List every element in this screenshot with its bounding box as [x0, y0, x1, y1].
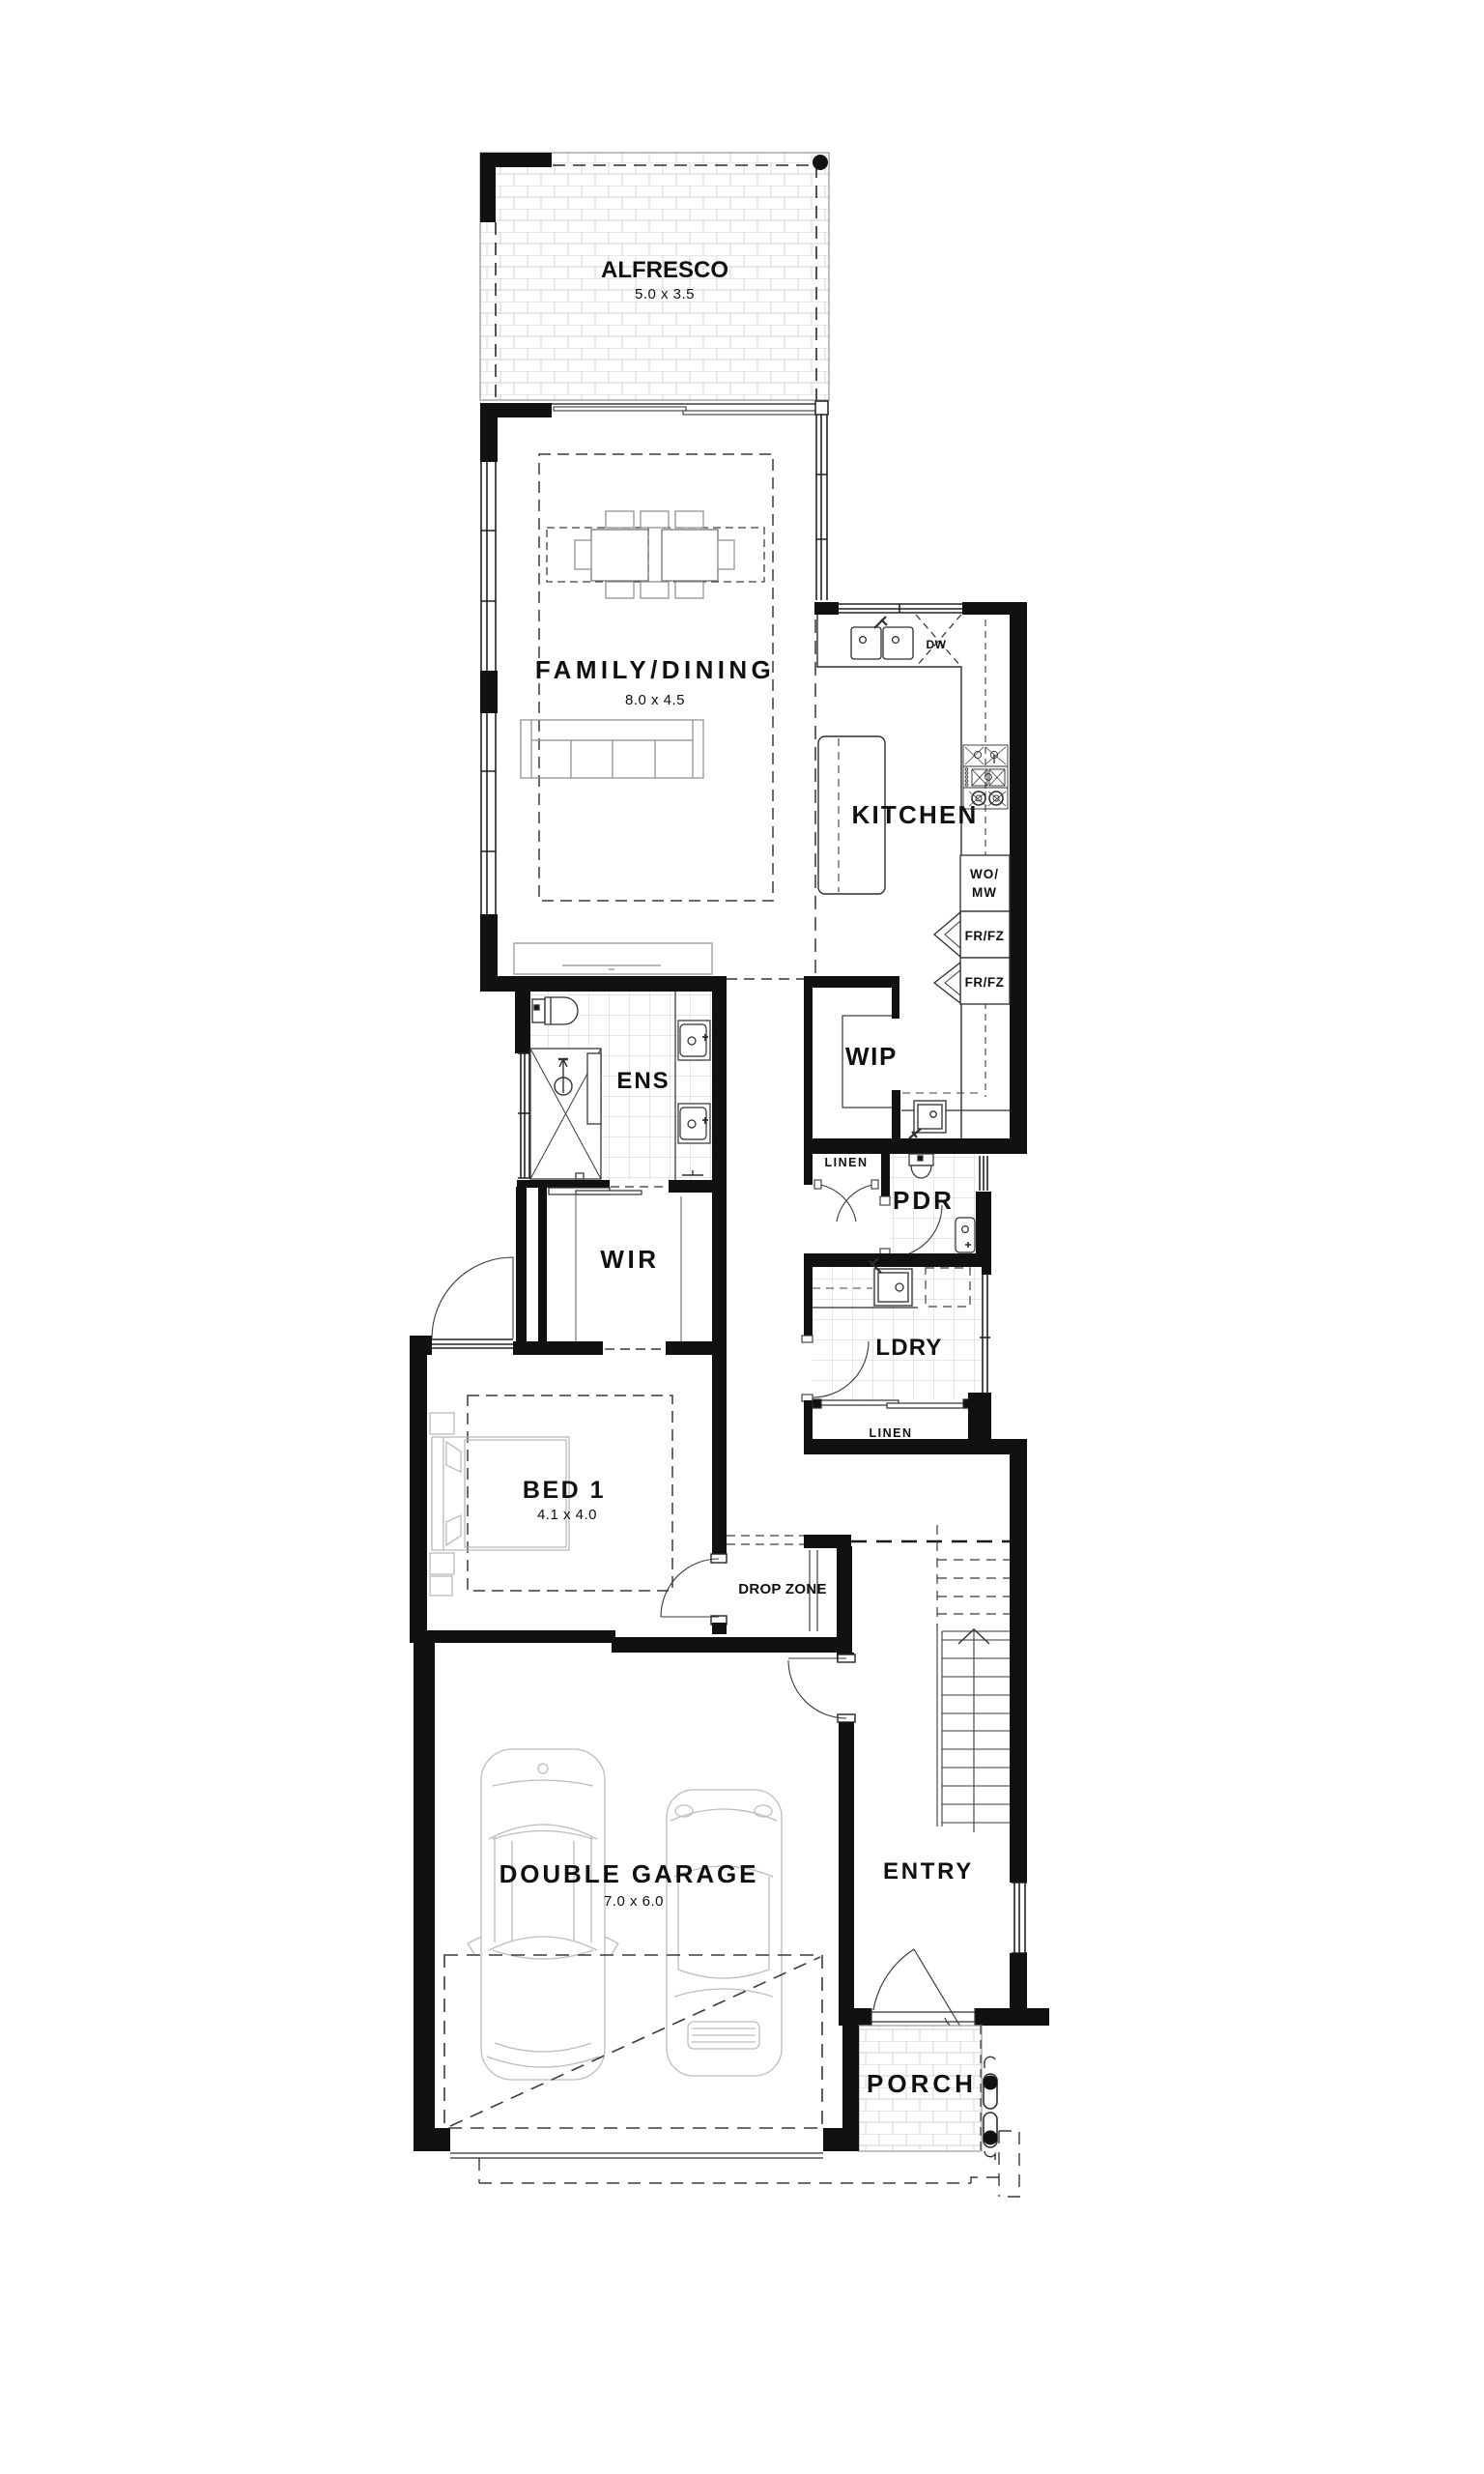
- svg-text:LDRY: LDRY: [875, 1335, 942, 1361]
- svg-text:LINEN: LINEN: [825, 1156, 869, 1169]
- svg-text:7.0 x 6.0: 7.0 x 6.0: [604, 1893, 664, 1910]
- svg-text:ALFRESCO: ALFRESCO: [601, 257, 728, 283]
- svg-text:LINEN: LINEN: [870, 1426, 913, 1440]
- svg-text:DOUBLE GARAGE: DOUBLE GARAGE: [499, 1859, 759, 1888]
- svg-text:8.0 x 4.5: 8.0 x 4.5: [625, 692, 685, 708]
- svg-text:MW: MW: [972, 885, 997, 900]
- svg-text:PORCH: PORCH: [867, 2069, 977, 2098]
- svg-text:WIR: WIR: [600, 1245, 659, 1274]
- svg-text:FR/FZ: FR/FZ: [965, 929, 1005, 943]
- svg-text:ENS: ENS: [616, 1068, 670, 1094]
- svg-text:ENTRY: ENTRY: [883, 1858, 974, 1884]
- svg-text:WO/: WO/: [970, 867, 999, 881]
- svg-text:4.1 x 4.0: 4.1 x 4.0: [537, 1507, 597, 1523]
- svg-text:PDR: PDR: [893, 1186, 955, 1215]
- svg-text:WIP: WIP: [845, 1042, 898, 1071]
- svg-text:FAMILY/DINING: FAMILY/DINING: [535, 655, 775, 684]
- svg-text:DW: DW: [927, 638, 947, 651]
- svg-text:KITCHEN: KITCHEN: [852, 800, 979, 829]
- svg-text:5.0 x 3.5: 5.0 x 3.5: [635, 286, 695, 302]
- svg-text:BED 1: BED 1: [523, 1477, 606, 1504]
- svg-text:FR/FZ: FR/FZ: [965, 975, 1005, 990]
- svg-text:DROP ZONE: DROP ZONE: [738, 1581, 827, 1597]
